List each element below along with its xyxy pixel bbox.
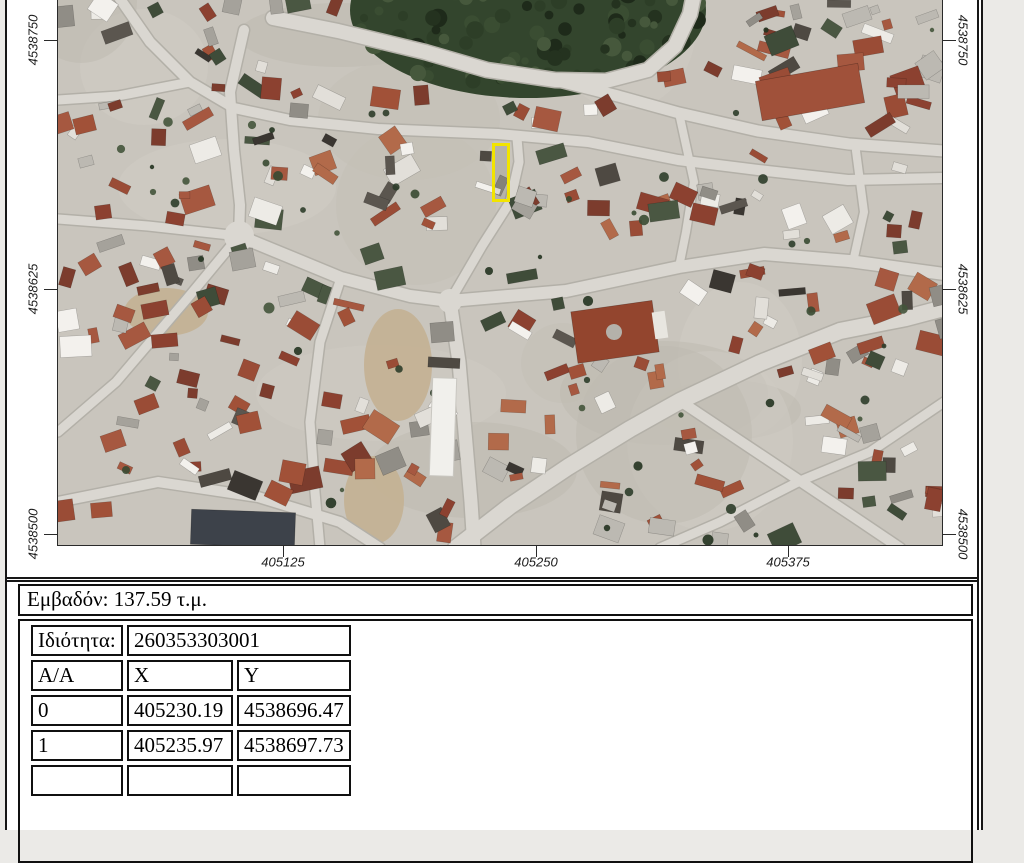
grid-tick-right (943, 40, 956, 41)
column-header-y: Y (237, 660, 351, 691)
grid-label-right: 4538500 (956, 509, 971, 560)
grid-label-right: 4538625 (956, 264, 971, 315)
coordinates-table: Ιδιότητα:260353303001A/AXY0405230.194538… (27, 621, 355, 800)
orthophoto-image (58, 0, 942, 545)
coordinate-row: 1405235.974538697.73 (31, 730, 351, 761)
empty-cell (127, 765, 233, 796)
area-text: Εμβαδόν: 137.59 τ.μ. (27, 587, 207, 611)
vertex-y-cell: 4538696.47 (237, 695, 351, 726)
gis-report-page: { "window": { "page_background": "#fffff… (0, 0, 1024, 768)
vertex-y-cell: 4538697.73 (237, 730, 351, 761)
area-box: Εμβαδόν: 137.59 τ.μ. (18, 584, 973, 616)
grid-tick-right (943, 289, 956, 290)
column-header-aa: A/A (31, 660, 123, 691)
coordinate-row: 0405230.194538696.47 (31, 695, 351, 726)
empty-cell (31, 765, 123, 796)
map-frame: 4538750453862545385004538750453862545385… (7, 0, 977, 582)
grid-label-right: 4538750 (956, 15, 971, 66)
empty-cell (237, 765, 351, 796)
highlighted-parcel (494, 145, 509, 201)
grid-tick-left (44, 534, 57, 535)
property-value-cell: 260353303001 (127, 625, 351, 656)
property-label-cell: Ιδιότητα: (31, 625, 123, 656)
grid-label-left: 4538750 (26, 15, 41, 66)
vertex-x-cell: 405230.19 (127, 695, 233, 726)
grid-label-bottom: 405250 (514, 555, 557, 570)
vertex-index-cell: 0 (31, 695, 123, 726)
document-page: 4538750453862545385004538750453862545385… (5, 0, 983, 830)
grid-tick-left (44, 40, 57, 41)
coordinates-box: Ιδιότητα:260353303001A/AXY0405230.194538… (18, 619, 973, 863)
grid-label-left: 4538625 (26, 264, 41, 315)
grid-label-left: 4538500 (26, 509, 41, 560)
vertex-x-cell: 405235.97 (127, 730, 233, 761)
satellite-map (57, 0, 943, 546)
grid-tick-right (943, 534, 956, 535)
column-header-x: X (127, 660, 233, 691)
grid-tick-left (44, 289, 57, 290)
grid-label-bottom: 405125 (261, 555, 304, 570)
grid-label-bottom: 405375 (766, 555, 809, 570)
vertex-index-cell: 1 (31, 730, 123, 761)
